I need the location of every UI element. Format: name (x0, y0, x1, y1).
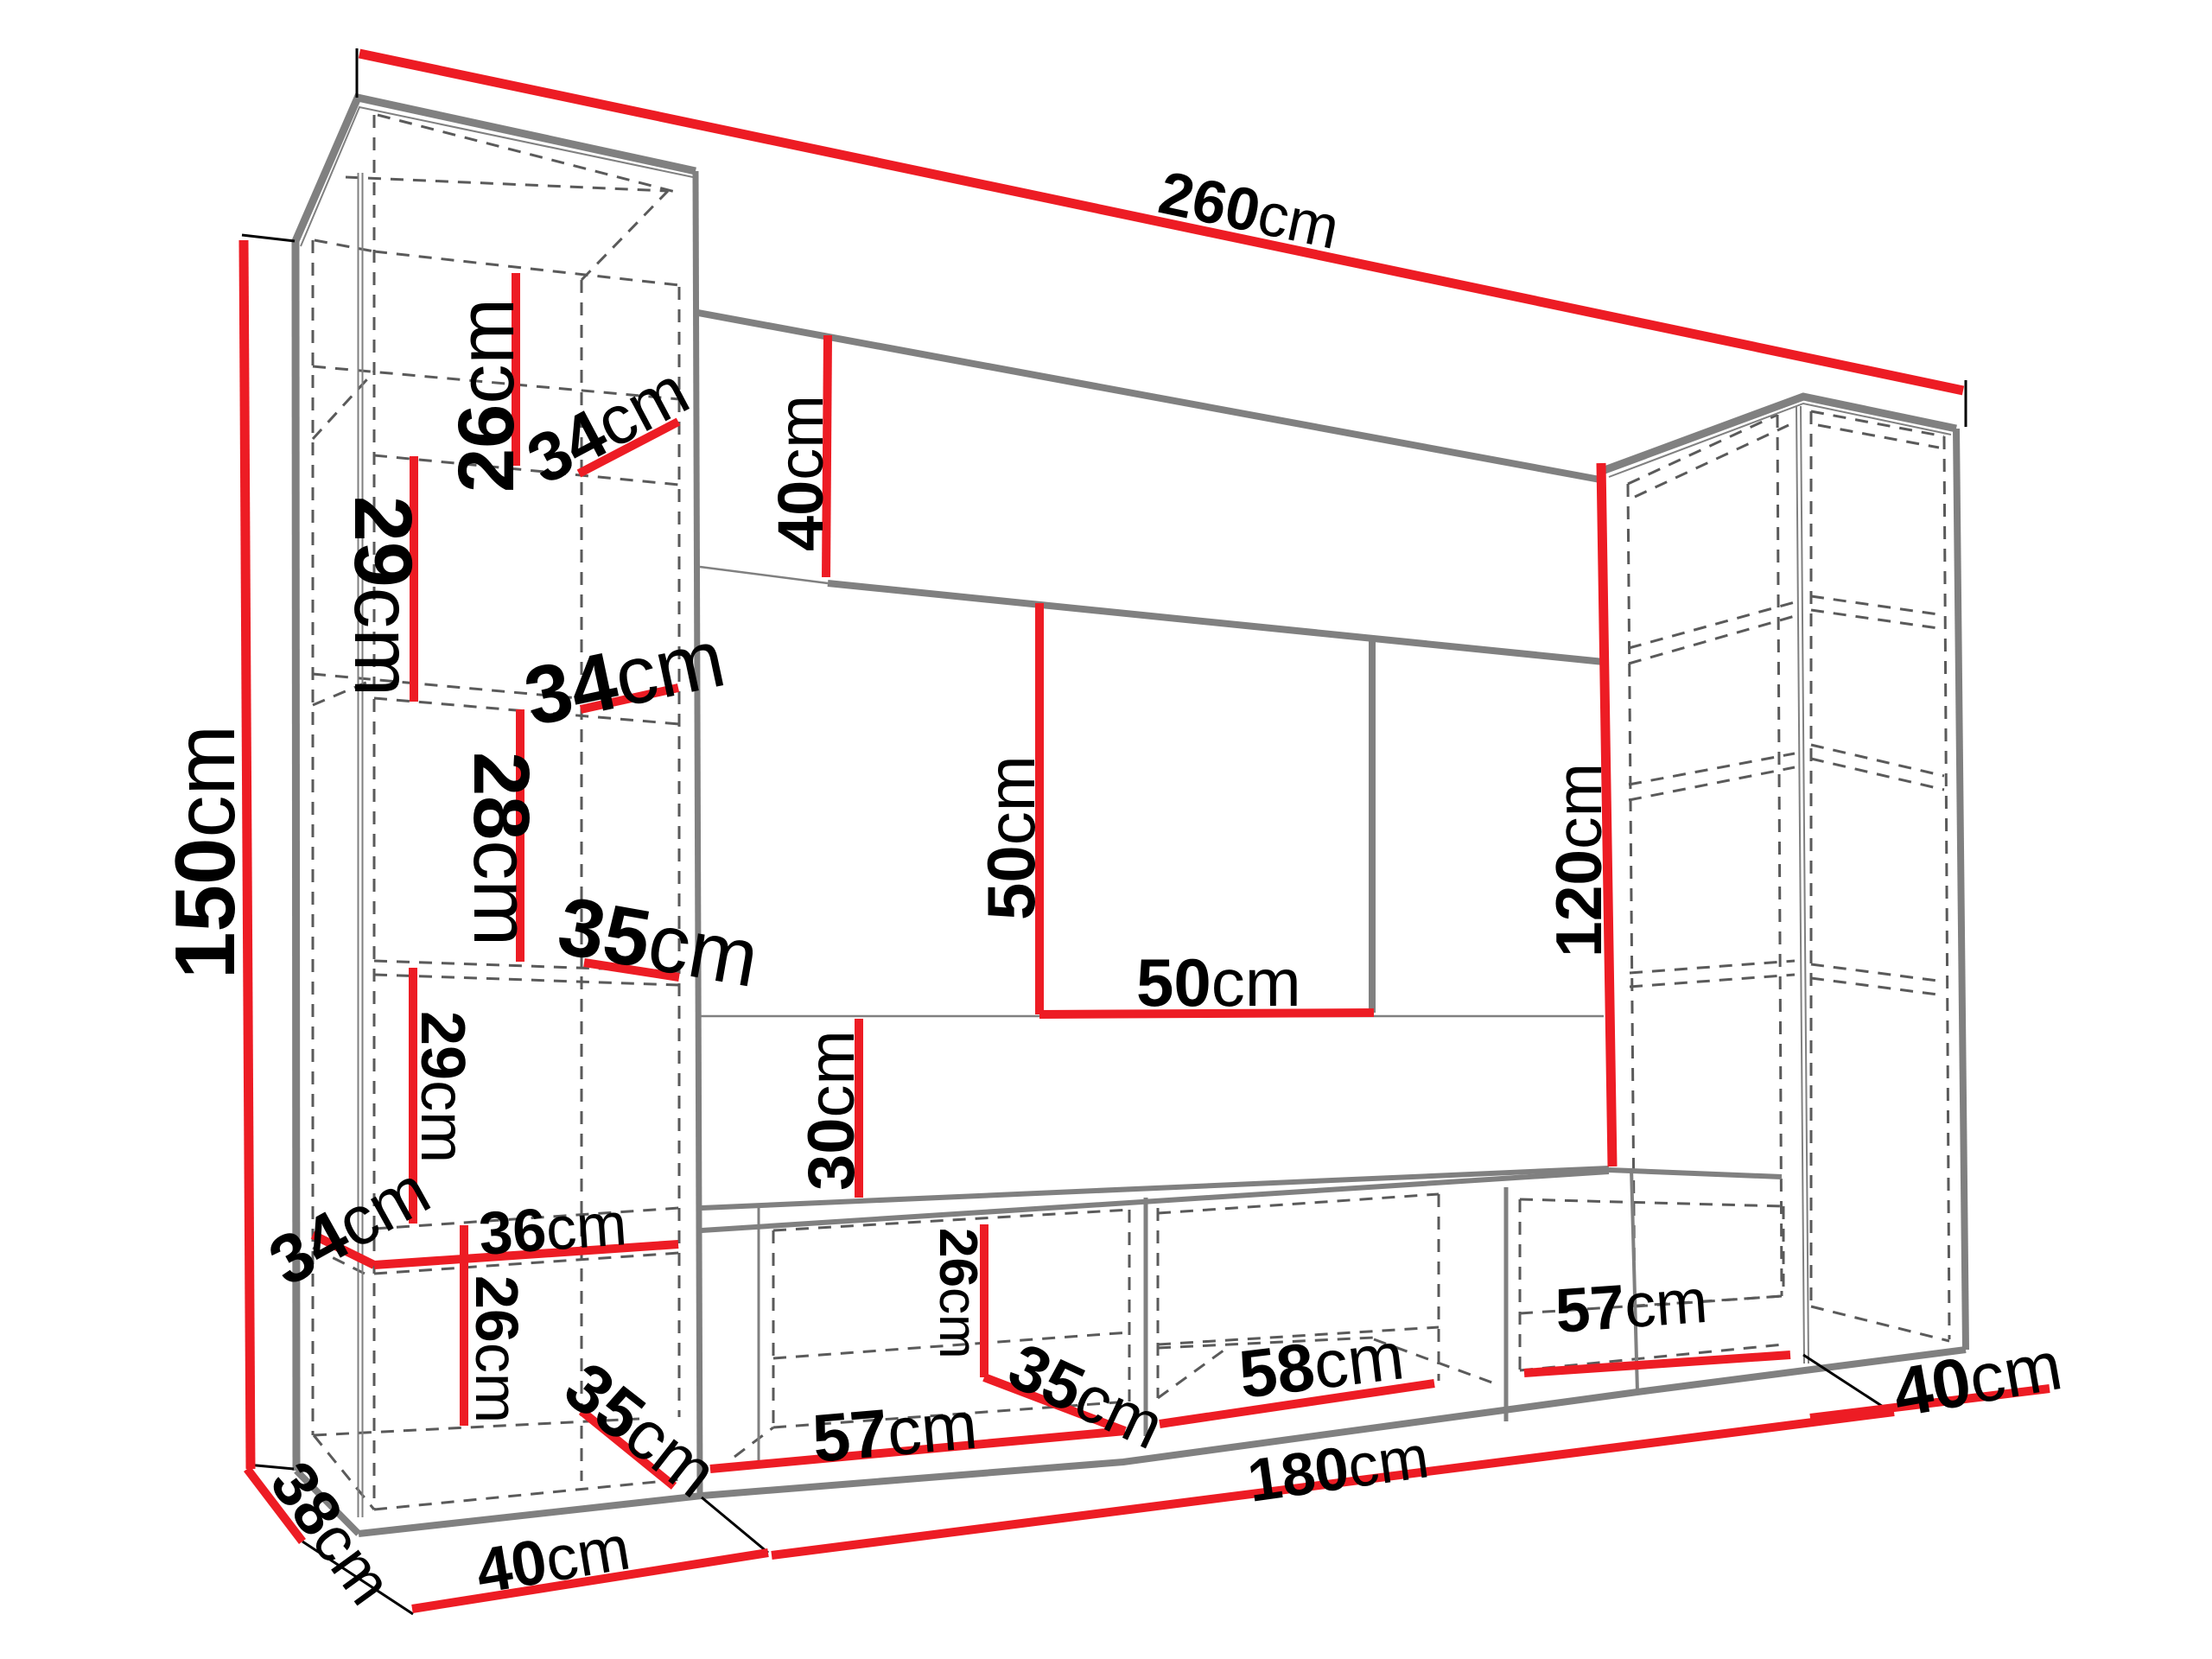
svg-text:28cm: 28cm (457, 752, 545, 946)
svg-text:26cm: 26cm (463, 1275, 531, 1423)
svg-text:50cm: 50cm (973, 755, 1049, 920)
svg-text:26cm: 26cm (442, 298, 531, 493)
svg-text:26cm: 26cm (928, 1228, 988, 1359)
svg-text:40cm: 40cm (765, 395, 836, 551)
svg-text:120cm: 120cm (1542, 763, 1615, 957)
svg-text:29cm: 29cm (337, 496, 429, 696)
svg-text:36cm: 36cm (477, 1190, 629, 1268)
svg-text:57cm: 57cm (810, 1387, 981, 1477)
svg-text:29cm: 29cm (408, 1011, 477, 1163)
svg-text:30cm: 30cm (795, 1030, 868, 1191)
svg-text:50cm: 50cm (1136, 944, 1301, 1020)
svg-text:57cm: 57cm (1554, 1267, 1710, 1346)
svg-text:150cm: 150cm (157, 725, 252, 979)
